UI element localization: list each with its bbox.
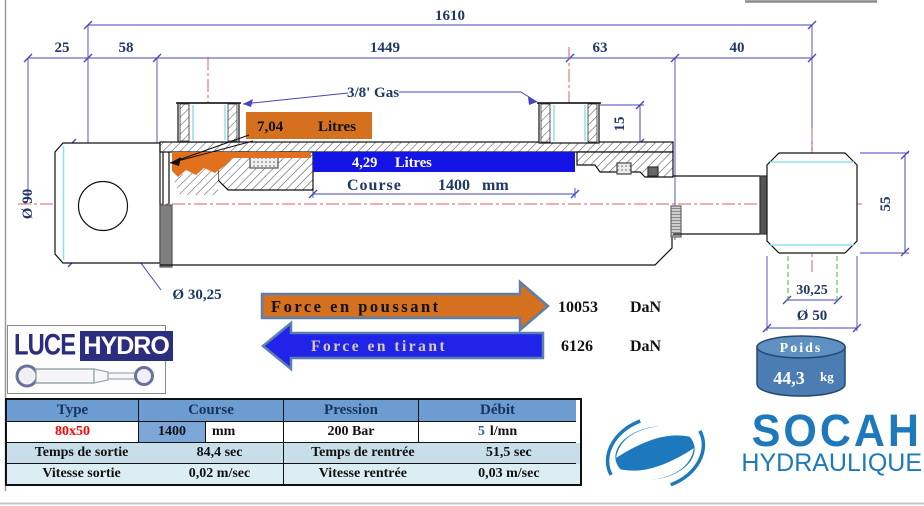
socah-logo: SOCAH HYDRAULIQUE (598, 403, 922, 501)
rear-weld-ring (160, 205, 172, 267)
spec-table-header-row: Type Course Pression Débit (7, 400, 580, 422)
speed-out-value: 0,02 m/sec (156, 466, 283, 482)
speed-out-label: Vitesse sortie (7, 466, 156, 482)
dim-40: 40 (730, 40, 745, 56)
rod-end-block (767, 153, 857, 253)
header-pression: Pression (284, 400, 419, 422)
left-port (176, 103, 241, 142)
dim-eye-diameter: Ø 30,25 (172, 287, 221, 303)
course-value-cell: 1400 (139, 422, 206, 442)
dim-58: 58 (119, 40, 134, 56)
debit-cell: 5 l/mn (419, 422, 576, 443)
course-value: 1400 (438, 177, 470, 194)
right-port (537, 103, 601, 143)
pull-volume-unit: Litres (395, 155, 432, 171)
speed-in-label: Vitesse rentrée (284, 466, 442, 482)
debit-value: 5 (478, 424, 485, 440)
dim-rod-diameter: Ø 50 (797, 308, 827, 324)
course-unit: mm (482, 177, 509, 194)
luce-logo-text-left: LUCE (14, 329, 75, 362)
pull-volume-value: 4,29 (352, 155, 377, 171)
force-pull-value: 6126 (561, 338, 593, 355)
socah-logo-name: SOCAH (741, 409, 922, 454)
dim-rod-flat: 30,25 (796, 283, 828, 298)
dim-63: 63 (593, 40, 608, 56)
socah-logo-mark (600, 407, 712, 499)
time-in-label: Temps de rentrée (284, 445, 442, 461)
spec-table: Type Course Pression Débit 80x50 1400 mm… (5, 398, 582, 486)
debit-unit: l/mn (490, 424, 517, 440)
dim-port-height: 15 (612, 117, 628, 132)
port-thread-label: 3/8' Gas (347, 85, 399, 101)
clevis-eye-hole (79, 182, 128, 231)
push-volume-unit: Litres (318, 119, 356, 135)
pression-value: 200 Bar (284, 422, 419, 443)
time-in-value: 51,5 sec (442, 445, 576, 461)
time-out-value: 84,4 sec (156, 445, 283, 461)
weight-unit: kg (820, 369, 834, 384)
force-pull-unit: DaN (630, 338, 662, 355)
course-label: Course (347, 177, 402, 194)
course-unit-cell: mm (206, 424, 235, 440)
drawing-sheet: 1610 25 58 1449 63 40 Ø 90 15 55 30,25 Ø… (0, 0, 924, 506)
speeds-row: Vitesse sortie 0,02 m/sec Vitesse rentré… (7, 464, 580, 484)
luce-hydro-logo: LUCE HYDRO (7, 325, 166, 394)
knurled-ring (671, 206, 681, 237)
dim-total-length: 1610 (435, 8, 465, 24)
luce-cylinder-art (14, 363, 159, 389)
force-push-unit: DaN (630, 299, 662, 316)
dim-25: 25 (55, 40, 70, 56)
force-push-value: 10053 (558, 299, 598, 316)
times-row: Temps de sortie 84,4 sec Temps de rentré… (7, 443, 580, 464)
weight-label: Poids (780, 341, 823, 356)
force-pull-label: Force en tirant (311, 338, 447, 355)
dim-1449: 1449 (370, 40, 400, 56)
dim-rod-end-width: 55 (878, 197, 894, 212)
weight-value: 44,3 (773, 368, 805, 388)
type-value: 80x50 (7, 422, 139, 443)
course-cell: 1400 mm (139, 422, 284, 443)
header-type: Type (7, 400, 139, 422)
force-arrows: Force en poussant 10053 DaN Force en tir… (262, 282, 662, 369)
push-volume-value: 7,04 (257, 119, 284, 135)
rod-seal (617, 163, 631, 174)
header-course: Course (139, 400, 284, 422)
force-push-label: Force en poussant (271, 297, 441, 316)
spec-table-values-row: 80x50 1400 mm 200 Bar 5 l/mn (7, 422, 580, 443)
time-out-label: Temps de sortie (7, 445, 156, 461)
header-debit: Débit (419, 400, 576, 422)
weight-drum: Poids 44,3 kg (757, 336, 845, 396)
luce-logo-text-right: HYDRO (80, 331, 173, 361)
speed-in-value: 0,03 m/sec (442, 466, 576, 482)
